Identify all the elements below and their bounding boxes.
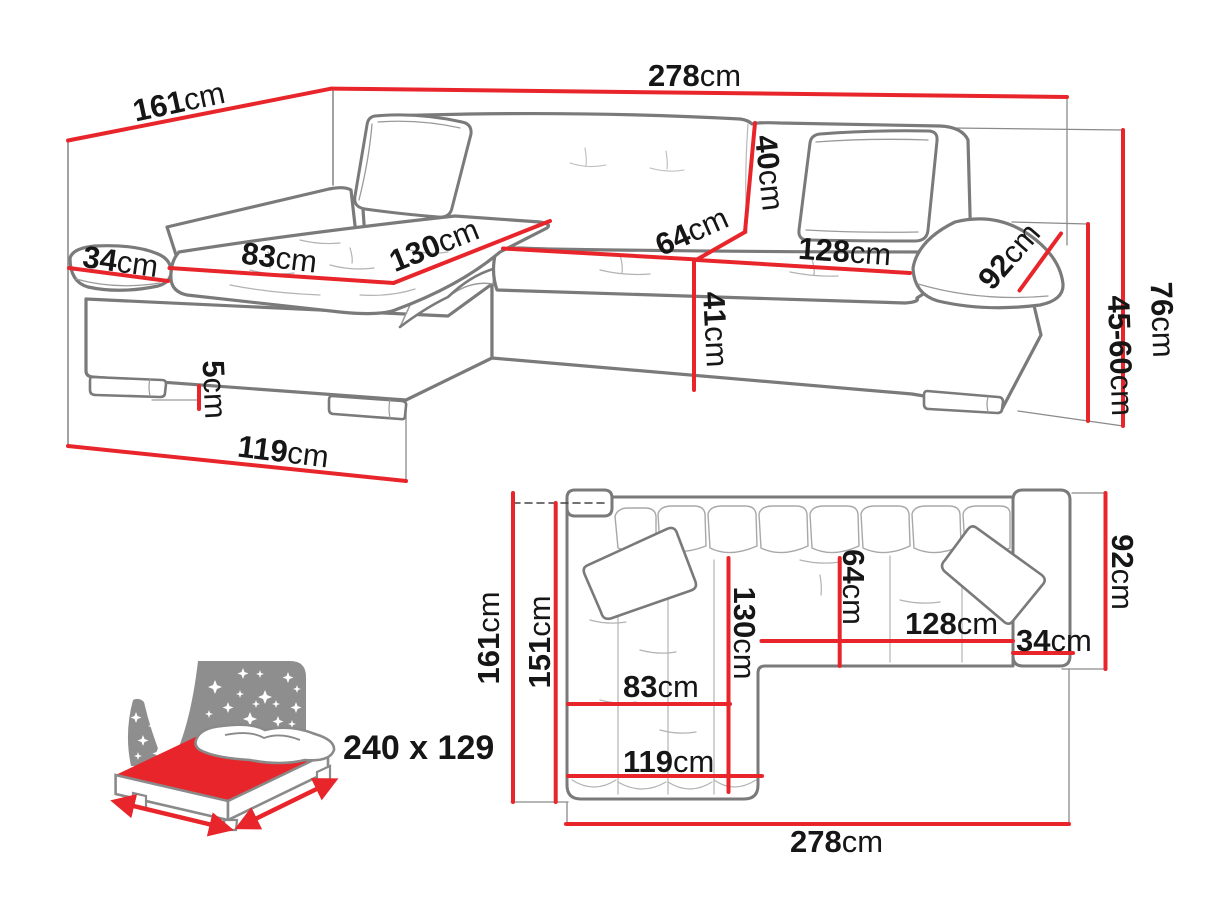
svg-text:5cm: 5cm (195, 359, 233, 419)
svg-text:240 x 129: 240 x 129 (343, 729, 494, 767)
svg-text:64cm: 64cm (836, 549, 871, 625)
svg-text:83cm: 83cm (623, 669, 699, 704)
svg-text:278cm: 278cm (648, 58, 741, 93)
svg-text:128cm: 128cm (905, 606, 998, 641)
svg-text:161cm: 161cm (471, 591, 506, 684)
svg-text:151cm: 151cm (522, 595, 557, 688)
svg-text:92cm: 92cm (1105, 534, 1140, 610)
svg-text:45-60cm: 45-60cm (1101, 295, 1140, 417)
svg-text:130cm: 130cm (727, 586, 762, 679)
svg-text:34cm: 34cm (1016, 623, 1092, 658)
svg-text:119cm: 119cm (623, 744, 714, 779)
svg-text:76cm: 76cm (1144, 281, 1182, 358)
svg-text:278cm: 278cm (790, 824, 883, 859)
svg-text:41cm: 41cm (696, 291, 735, 369)
svg-text:128cm: 128cm (797, 231, 892, 272)
